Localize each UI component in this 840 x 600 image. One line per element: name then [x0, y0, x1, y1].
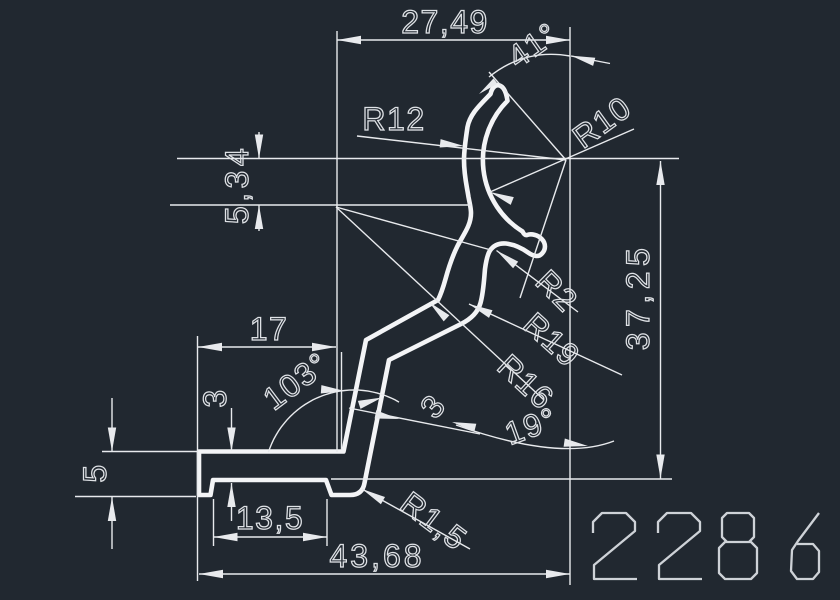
svg-text:R12: R12 — [362, 101, 425, 137]
svg-text:5: 5 — [77, 463, 113, 482]
svg-text:3: 3 — [197, 388, 233, 407]
svg-text:103°: 103° — [256, 345, 335, 417]
svg-text:37,25: 37,25 — [620, 243, 656, 351]
svg-text:27,49: 27,49 — [401, 4, 489, 40]
svg-text:41°: 41° — [501, 15, 565, 75]
svg-text:17: 17 — [250, 311, 289, 347]
svg-text:43,68: 43,68 — [329, 538, 424, 574]
svg-text:13,5: 13,5 — [236, 500, 304, 536]
svg-text:R10: R10 — [566, 89, 638, 155]
svg-text:5,34: 5,34 — [219, 144, 255, 224]
svg-text:3: 3 — [413, 387, 453, 425]
